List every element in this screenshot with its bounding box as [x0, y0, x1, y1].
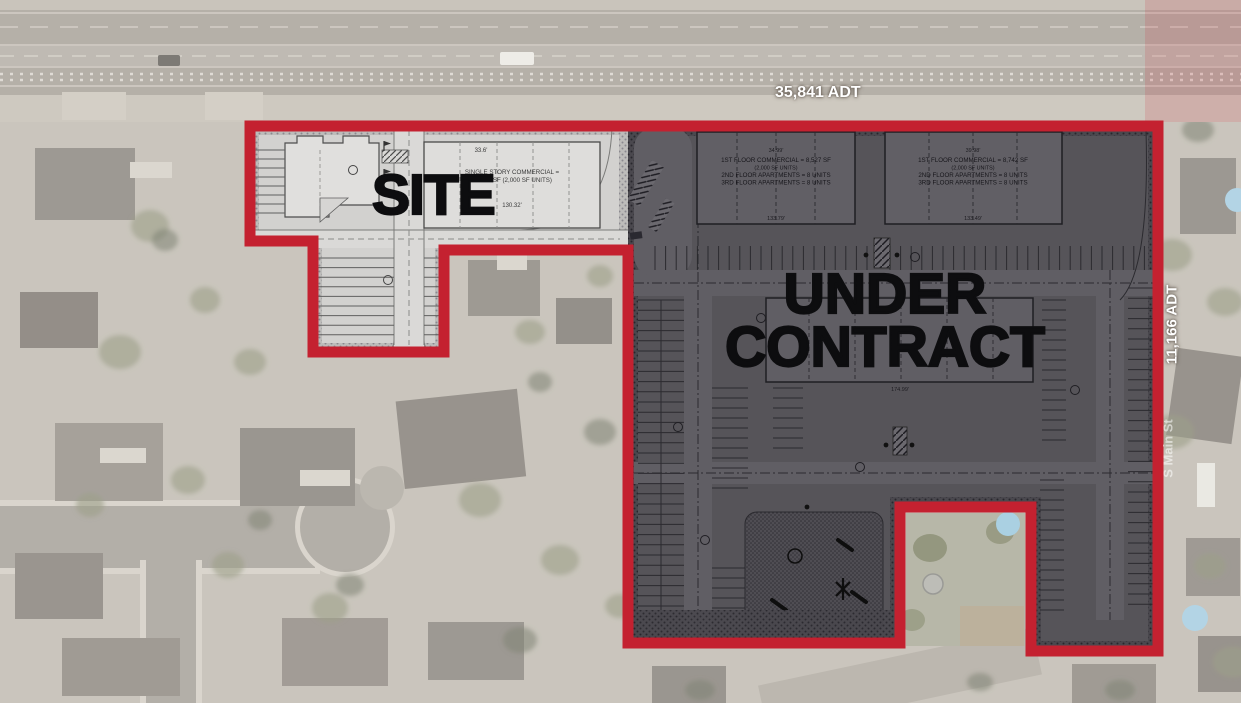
dim-label: 39.98'	[966, 148, 981, 154]
site-label: SITE	[372, 167, 495, 224]
building-a-label-4: 3RD FLOOR APARTMENTS = 8 UNITS	[721, 180, 830, 187]
under-contract-line2: CONTRACT	[705, 321, 1065, 374]
hatch-island	[382, 150, 408, 163]
under-contract-dark-area: 1ST FLOOR COMMERCIAL = 8,527 SF (2,000 S…	[628, 126, 1158, 651]
site-aerial-map: SINGLE STORY COMMERCIAL = TOTAL SF (2,00…	[0, 0, 1241, 703]
under-contract-label: UNDER CONTRACT	[705, 268, 1065, 374]
building-b-label-4: 3RD FLOOR APARTMENTS = 8 UNITS	[918, 180, 1027, 187]
building-a-label-1: 1ST FLOOR COMMERCIAL = 8,527 SF	[721, 157, 831, 164]
dim-label: 133.49'	[964, 216, 982, 222]
building-b: 1ST FLOOR COMMERCIAL = 8,742 SF (2,000 S…	[885, 132, 1062, 224]
under-contract-line1: UNDER	[705, 268, 1065, 321]
building-a-label-3: 2ND FLOOR APARTMENTS = 8 UNITS	[721, 172, 830, 179]
building-b-label-2: (2,000 SF UNITS)	[951, 166, 994, 172]
crosswalk-hatch	[893, 427, 907, 455]
dim-label: 33.6'	[475, 148, 488, 154]
adt-right-label: 11,166 ADT	[1164, 255, 1181, 395]
building-b-label-1: 1ST FLOOR COMMERCIAL = 8,742 SF	[918, 157, 1028, 164]
building-a: 1ST FLOOR COMMERCIAL = 8,527 SF (2,000 S…	[697, 132, 855, 224]
dim-label: 174.99'	[891, 387, 909, 393]
dim-label: 133.79'	[767, 216, 785, 222]
building-a-label-2: (2,000 SF UNITS)	[754, 166, 797, 172]
adt-top-label: 35,841 ADT	[775, 84, 861, 102]
dim-label: 34.99'	[769, 148, 784, 154]
dim-label: 130.32'	[502, 203, 522, 209]
building-b-label-3: 2ND FLOOR APARTMENTS = 8 UNITS	[918, 172, 1027, 179]
street-right-label: S Main St	[1161, 379, 1176, 519]
road-tint	[1145, 0, 1241, 122]
